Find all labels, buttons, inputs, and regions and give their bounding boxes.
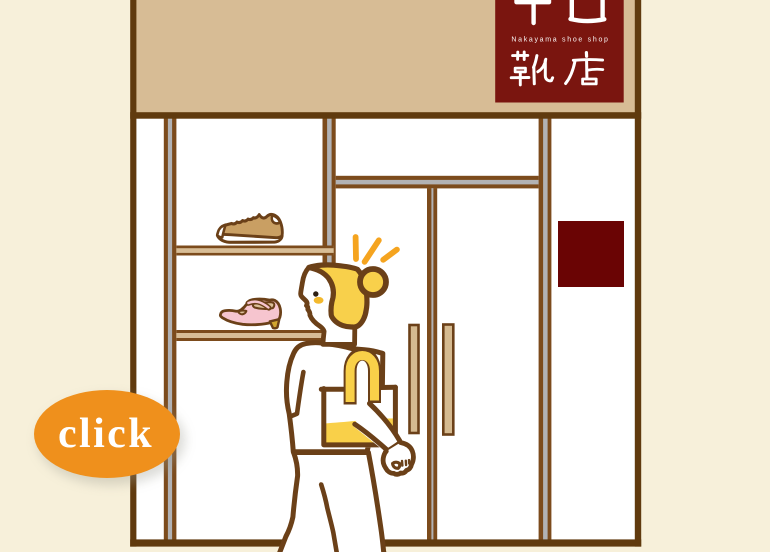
svg-text:Nakayama shoe shop: Nakayama shoe shop — [511, 37, 609, 44]
svg-text:click: click — [58, 411, 154, 457]
